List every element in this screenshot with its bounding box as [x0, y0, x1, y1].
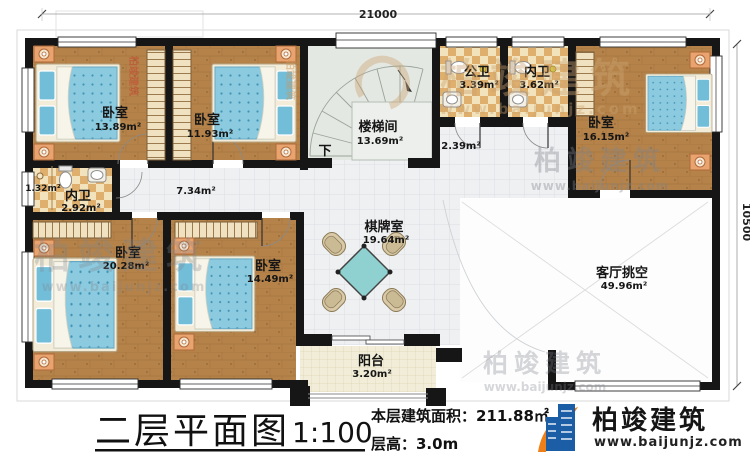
watermark-brand: 柏竣建筑 — [483, 349, 607, 378]
bedroom1-area: 13.89m² — [95, 122, 141, 133]
watermark-stamp: 柏竣建筑 — [127, 56, 140, 96]
hall2-area: 2.39m² — [441, 141, 480, 152]
bed-bedroom3 — [646, 74, 712, 133]
living-void-label: 客厅挑空 — [596, 265, 648, 281]
sink-icon — [91, 171, 103, 180]
plan-scale: 1:100 — [292, 416, 373, 449]
watermark-url: www.baijunjz.com — [42, 280, 207, 295]
bedroom3-area: 16.15m² — [583, 132, 629, 143]
dimension-top: 21000 — [359, 8, 398, 21]
balcony-area: 3.20m² — [352, 369, 391, 380]
living-void-area: 49.96m² — [601, 281, 647, 292]
stairs-down-label: 下 — [318, 144, 331, 159]
inner-bath-left-label: 内卫 — [65, 188, 91, 204]
bedroom5-label: 卧室 — [255, 258, 281, 274]
dimension-right: 10500 — [740, 203, 750, 242]
stairwell-area: 13.69m² — [357, 136, 403, 147]
floorplan-page: 卧室 13.89m² 卧室 11.93m² 楼梯间 13.69m² 公卫 3.3… — [0, 0, 750, 460]
game-room-area: 19.64m² — [363, 235, 409, 246]
bedroom5-area: 14.49m² — [247, 274, 293, 285]
hall-area: 7.34m² — [176, 186, 215, 197]
floor-height-text: 层高：3.0m — [371, 435, 458, 453]
floor-area-text: 本层建筑面积：211.88㎡ — [371, 407, 549, 425]
watermark-url: www.baijunjz.com — [439, 100, 640, 118]
inner-bath-left-area: 2.92m² — [61, 203, 100, 214]
bedroom1-label: 卧室 — [102, 105, 128, 121]
watermark-url: www.baijunjz.com — [531, 179, 670, 193]
watermark-url: www.baijunjz.com — [484, 380, 607, 394]
shower-head-icon — [37, 173, 43, 179]
brand-logo: 柏竣建筑 www.baijunjz.com — [538, 404, 743, 452]
watermark-brand: 柏竣建筑 — [34, 236, 210, 277]
title-block: 二层平面图 1:100 本层建筑面积：211.88㎡ 层高：3.0m — [95, 407, 549, 453]
watermark-stamp: 柏竣建筑 — [284, 60, 297, 100]
floorplan-drawing: 卧室 13.89m² 卧室 11.93m² 楼梯间 13.69m² 公卫 3.3… — [0, 0, 750, 460]
watermark-brand: 柏竣建筑 — [440, 56, 640, 102]
bedroom2-area: 11.93m² — [187, 129, 233, 140]
closet-area: 1.32m² — [25, 184, 61, 194]
brand-name: 柏竣建筑 — [592, 405, 708, 436]
plan-title: 二层平面图 — [95, 411, 290, 452]
brand-url: www.baijunjz.com — [594, 435, 743, 450]
balcony-railing — [308, 394, 428, 398]
game-room-floor — [304, 160, 460, 345]
bedroom2-label: 卧室 — [194, 112, 220, 128]
game-room-label: 棋牌室 — [363, 219, 403, 235]
balcony-label: 阳台 — [358, 353, 384, 369]
stairwell-label: 楼梯间 — [358, 119, 397, 135]
watermark-brand: 柏竣建筑 — [534, 145, 666, 177]
toilet-icon — [60, 172, 72, 188]
